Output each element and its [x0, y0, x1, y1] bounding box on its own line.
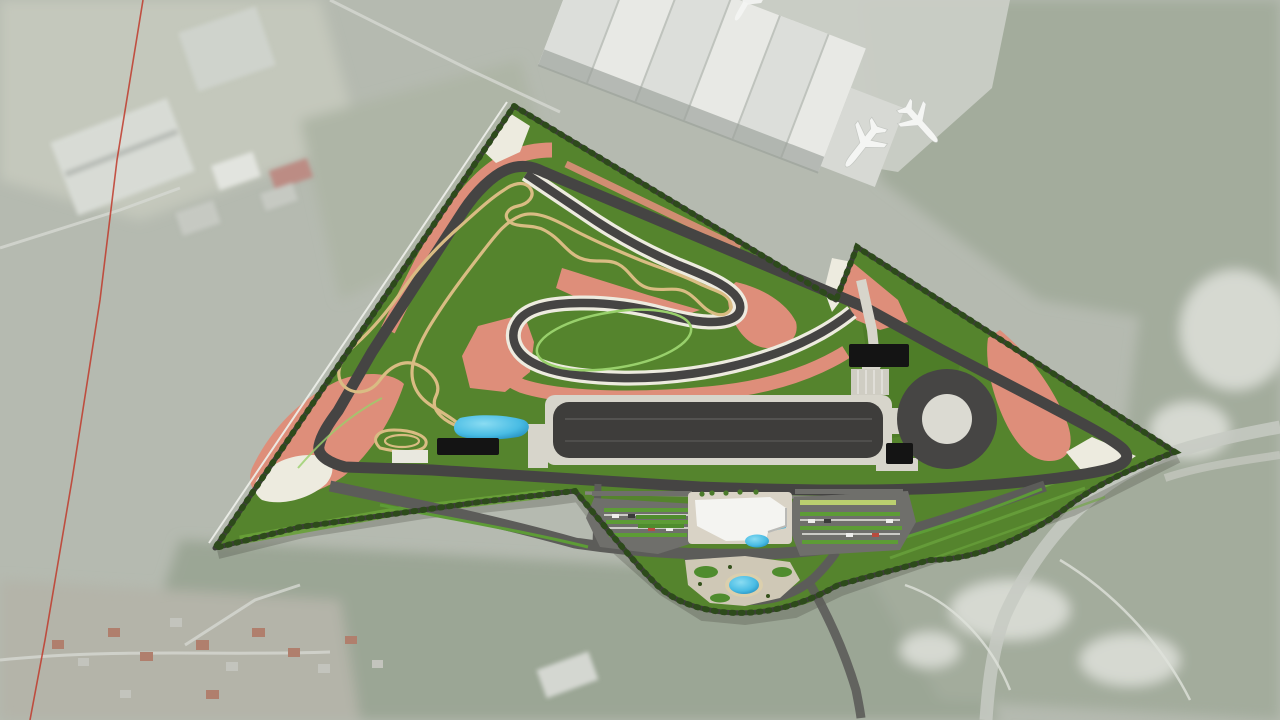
rock-patch — [900, 632, 960, 668]
tree-icon — [709, 490, 714, 495]
shrub-icon — [728, 565, 732, 569]
parking-hedge — [604, 508, 688, 512]
parking-hedge — [800, 512, 900, 516]
visitor-building-area — [688, 489, 792, 547]
parking-hedge — [800, 526, 902, 530]
parking-lot-east — [786, 491, 916, 556]
garden-bed — [710, 594, 730, 603]
concrete-pad — [392, 450, 428, 463]
house — [170, 618, 182, 627]
shrub-icon — [766, 594, 770, 598]
house — [140, 652, 153, 661]
house — [108, 628, 120, 637]
parking-hedge — [609, 533, 687, 537]
parking-row-north — [592, 491, 692, 496]
car — [628, 514, 635, 518]
shrub-icon — [698, 582, 702, 586]
parking-hedge — [802, 540, 898, 544]
car — [872, 533, 879, 537]
village-ground — [0, 580, 360, 720]
house — [252, 628, 265, 637]
house — [52, 640, 64, 649]
wet-pool — [454, 415, 529, 439]
garden-bed — [694, 566, 718, 578]
tree-icon — [753, 489, 758, 494]
pool-building — [437, 438, 499, 455]
median-garden — [638, 524, 684, 528]
tree-icon — [699, 491, 704, 496]
car — [846, 533, 853, 537]
house — [372, 660, 383, 668]
house — [78, 658, 89, 666]
house — [345, 636, 357, 644]
building-pool — [745, 535, 769, 548]
car — [612, 514, 619, 518]
house — [206, 690, 219, 699]
parking-row-north — [795, 489, 903, 494]
car — [886, 519, 893, 523]
apron-strip-west — [528, 424, 548, 468]
house — [288, 648, 300, 657]
house — [196, 640, 209, 650]
ornamental-pond — [729, 576, 759, 594]
small-building — [886, 443, 913, 464]
car — [808, 519, 815, 523]
dynamic-platform — [553, 402, 883, 458]
house — [120, 690, 131, 698]
aerial-map-canvas — [0, 0, 1280, 720]
garden-bed — [772, 567, 792, 577]
median-garden — [636, 515, 686, 519]
tree-icon — [723, 490, 728, 495]
aerial-view — [0, 0, 1280, 720]
parking-hedge — [606, 520, 690, 524]
workshop-building — [849, 344, 909, 367]
car — [824, 519, 831, 523]
house — [226, 662, 238, 671]
skidpad-center — [922, 394, 972, 444]
tree-icon — [737, 489, 742, 494]
parking-hedge-yellow — [800, 500, 896, 505]
workshop-parking — [851, 369, 889, 395]
house — [318, 664, 330, 673]
